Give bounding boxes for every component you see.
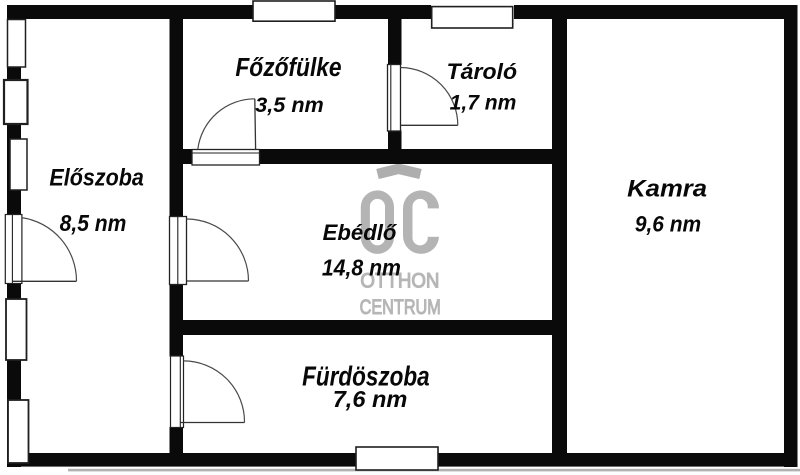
svg-text:7,6 nm: 7,6 nm xyxy=(333,387,408,413)
svg-text:14,8 nm: 14,8 nm xyxy=(322,255,401,281)
svg-text:Főzőfülke: Főzőfülke xyxy=(235,54,341,83)
svg-text:1,7 nm: 1,7 nm xyxy=(450,90,517,114)
svg-text:CENTRUM: CENTRUM xyxy=(360,295,441,319)
svg-text:9,6 nm: 9,6 nm xyxy=(635,211,701,237)
svg-text:3,5 nm: 3,5 nm xyxy=(255,92,323,117)
svg-text:Tároló: Tároló xyxy=(447,60,518,84)
svg-text:Ebédlő: Ebédlő xyxy=(323,220,397,245)
svg-text:Előszoba: Előszoba xyxy=(49,163,143,190)
svg-text:Kamra: Kamra xyxy=(627,177,707,203)
svg-text:8,5 nm: 8,5 nm xyxy=(60,210,127,236)
